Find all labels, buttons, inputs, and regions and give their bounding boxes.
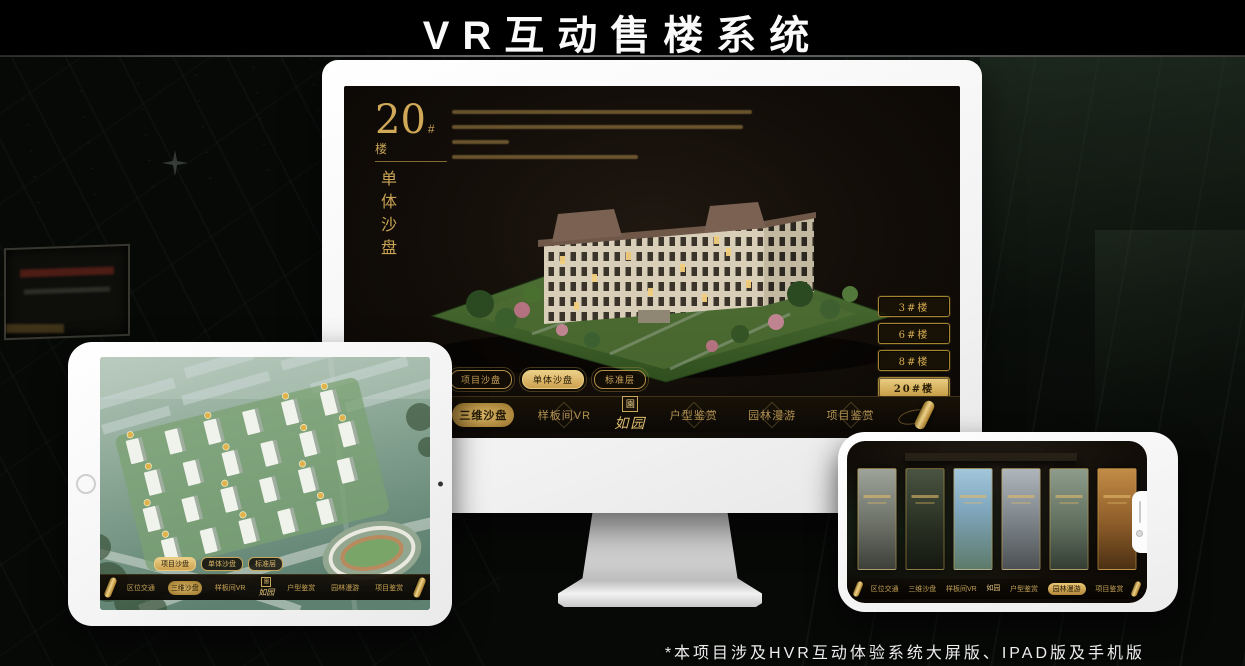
- building-selector: 3#楼 6#楼 8#楼 20#楼: [878, 296, 950, 398]
- tablet-device: 项目沙盘 单体沙盘 标准层 区位交通 三维沙盘 样板间VR 園 如园 户型鉴赏 …: [68, 342, 452, 626]
- nav-item-3d-sandbox[interactable]: 三维沙盘: [452, 403, 514, 427]
- nav-item-garden-tour[interactable]: 园林漫游: [1048, 583, 1086, 595]
- subtab-project-sandbox[interactable]: 项目沙盘: [450, 370, 512, 389]
- subtab-single-sandbox[interactable]: 单体沙盘: [522, 370, 584, 389]
- logo-name: 如园: [614, 413, 646, 433]
- camera-icon: [1136, 530, 1143, 537]
- phone-device: 区位交通 三维沙盘 样板间VR 如园 户型鉴赏 园林漫游 项目鉴赏: [838, 432, 1178, 612]
- scene-card[interactable]: [858, 468, 897, 570]
- subtab-project-sandbox[interactable]: 项目沙盘: [154, 557, 196, 571]
- gate-beam: [905, 453, 1077, 461]
- scene-card[interactable]: [1050, 468, 1089, 570]
- monitor-stand: [558, 511, 762, 607]
- tablet-nav-wrap: 项目沙盘 单体沙盘 标准层 区位交通 三维沙盘 样板间VR 園 如园 户型鉴赏 …: [100, 557, 430, 600]
- phone-notch: [1132, 491, 1147, 553]
- logo-seal-icon: 園: [261, 577, 271, 587]
- nav-item-project-gallery[interactable]: 项目鉴赏: [372, 581, 406, 595]
- scroll-menu-button[interactable]: [898, 400, 934, 430]
- nav-item-location[interactable]: 区位交通: [871, 584, 899, 594]
- project-logo: 如园: [986, 585, 1000, 593]
- nav-item-3d-sandbox[interactable]: 三维沙盘: [168, 581, 202, 595]
- tablet-screen: 项目沙盘 单体沙盘 标准层 区位交通 三维沙盘 样板间VR 園 如园 户型鉴赏 …: [100, 357, 430, 610]
- subtab-standard-floor[interactable]: 标准层: [594, 370, 646, 389]
- logo-seal-icon: 園: [622, 396, 638, 412]
- background-photo-canal: [1095, 230, 1245, 450]
- scene-card[interactable]: [906, 468, 945, 570]
- building-3d-render: [414, 144, 904, 384]
- scroll-handle-right-icon: [412, 576, 426, 598]
- intro-text-line: [452, 110, 752, 114]
- nav-item-floorplans[interactable]: 户型鉴赏: [1010, 584, 1038, 594]
- scene-gallery: [858, 468, 1137, 570]
- plaque-text-line: [20, 266, 114, 277]
- footnote: *本项目涉及HVR互动体验系统大屏版、IPAD版及手机版: [665, 639, 1145, 663]
- logo-name: 如园: [258, 587, 274, 598]
- speaker-icon: [1139, 501, 1141, 523]
- sandbox-subtabs: 项目沙盘 单体沙盘 标准层: [450, 370, 646, 389]
- nav-item-project-gallery[interactable]: 项目鉴赏: [820, 403, 882, 427]
- building-button-6[interactable]: 6#楼: [878, 323, 950, 344]
- nav-item-garden-tour[interactable]: 园林漫游: [328, 581, 362, 595]
- scroll-handle-left-icon: [103, 576, 117, 598]
- building-button-20[interactable]: 20#楼: [878, 377, 950, 398]
- front-camera-icon: [438, 482, 443, 487]
- home-button[interactable]: [76, 474, 96, 494]
- gate-beam: [939, 447, 1043, 452]
- scroll-handle-right-icon: [1130, 580, 1142, 597]
- nav-item-showroom-vr[interactable]: 样板间VR: [212, 581, 249, 595]
- nav-item-showroom-vr[interactable]: 样板间VR: [531, 403, 598, 427]
- phone-screen: 区位交通 三维沙盘 样板间VR 如园 户型鉴赏 园林漫游 项目鉴赏: [847, 441, 1147, 603]
- nav-item-showroom-vr[interactable]: 样板间VR: [946, 584, 977, 594]
- intro-text-line: [452, 125, 743, 129]
- subtab-standard-floor[interactable]: 标准层: [248, 557, 283, 571]
- nav-item-floorplans[interactable]: 户型鉴赏: [663, 403, 725, 427]
- project-logo: 園 如园: [614, 396, 646, 433]
- nav-item-project-gallery[interactable]: 项目鉴赏: [1095, 584, 1123, 594]
- building-button-3[interactable]: 3#楼: [878, 296, 950, 317]
- phone-nav-bar: 区位交通 三维沙盘 样板间VR 如园 户型鉴赏 园林漫游 项目鉴赏: [847, 579, 1147, 599]
- tablet-nav-bar: 区位交通 三维沙盘 样板间VR 園 如园 户型鉴赏 园林漫游 项目鉴赏: [100, 574, 430, 600]
- nav-item-location[interactable]: 区位交通: [124, 581, 158, 595]
- plaque-text-line: [24, 286, 110, 294]
- scene-card[interactable]: [1002, 468, 1041, 570]
- building-button-8[interactable]: 8#楼: [878, 350, 950, 371]
- scene-card[interactable]: [1098, 468, 1137, 570]
- page-title: VR互动售楼系统: [0, 3, 1245, 61]
- nav-item-garden-tour[interactable]: 园林漫游: [741, 403, 803, 427]
- scroll-handle-left-icon: [852, 580, 864, 597]
- section-title-vertical: 单体沙盘: [375, 170, 399, 288]
- tablet-subtabs: 项目沙盘 单体沙盘 标准层: [154, 557, 430, 571]
- nav-item-floorplans[interactable]: 户型鉴赏: [284, 581, 318, 595]
- building-number: 20: [375, 97, 426, 143]
- background-logo-mark: [6, 324, 64, 333]
- scene-card[interactable]: [954, 468, 993, 570]
- subtab-single-sandbox[interactable]: 单体沙盘: [201, 557, 243, 571]
- project-logo: 園 如园: [258, 577, 274, 598]
- nav-item-3d-sandbox[interactable]: 三维沙盘: [908, 584, 936, 594]
